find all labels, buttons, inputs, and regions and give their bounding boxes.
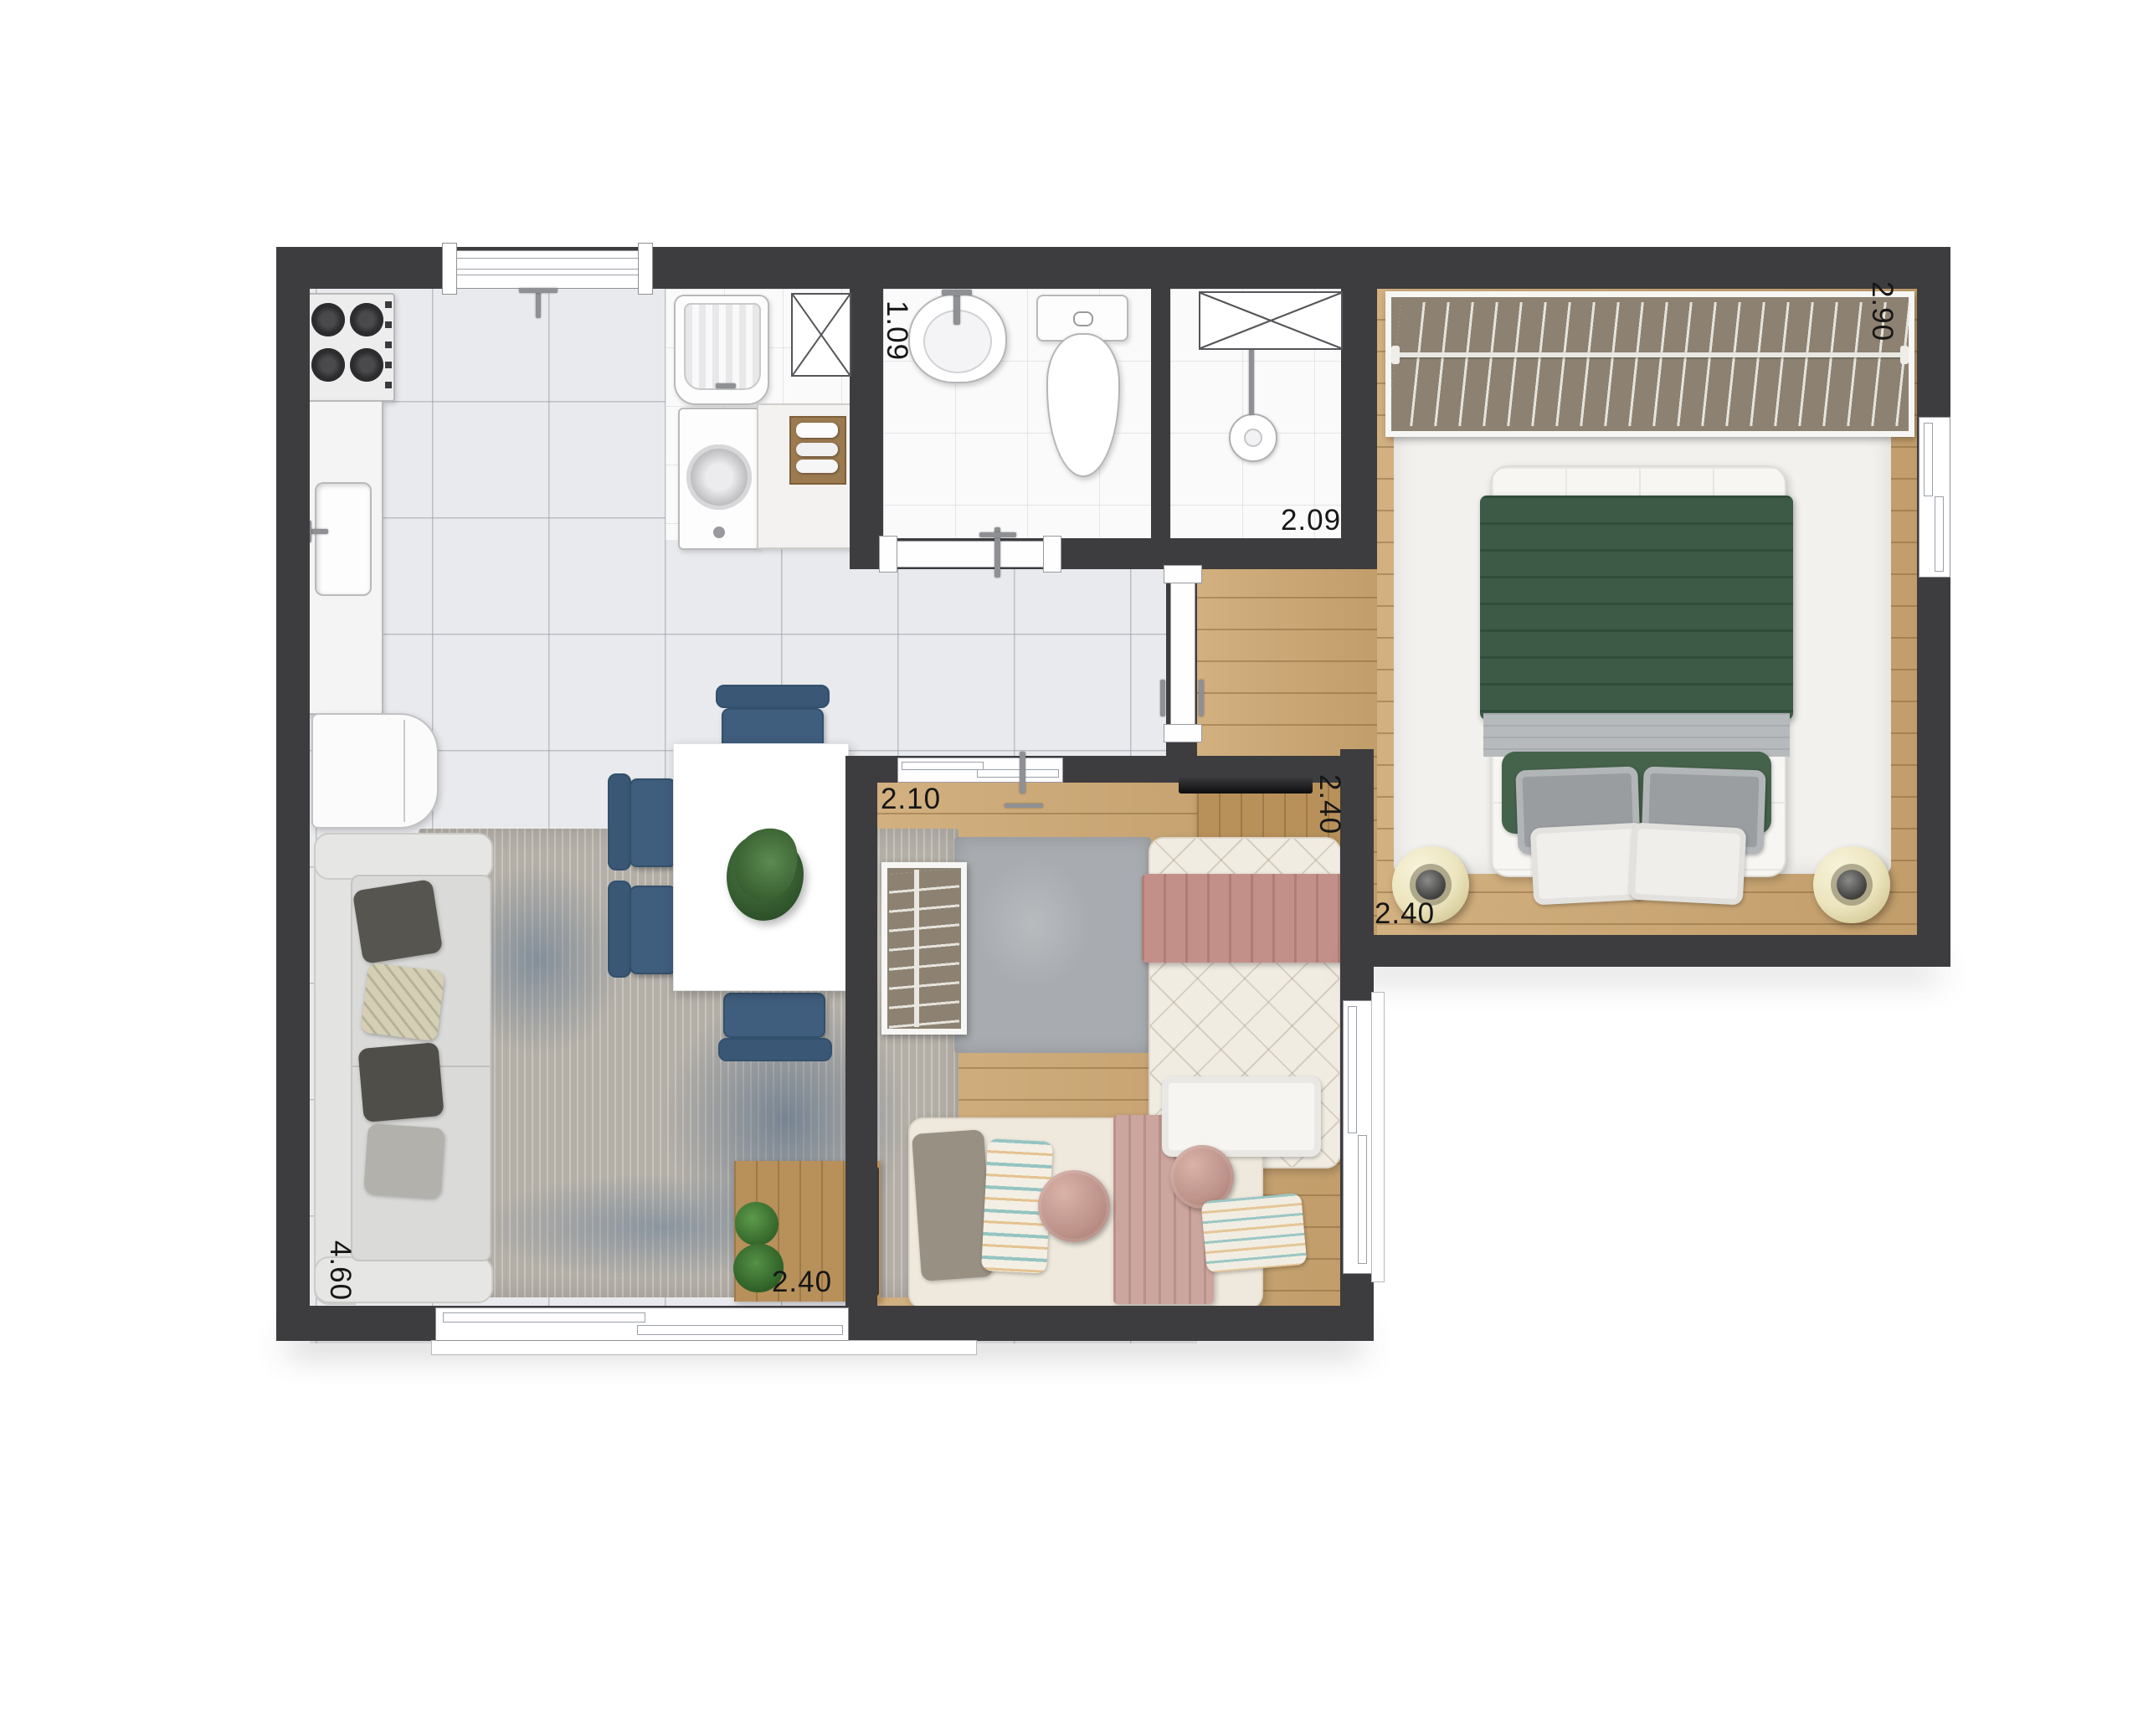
wall-bedroom2-left: [845, 756, 877, 1310]
bathroom-sink-faucet-bar: [942, 290, 972, 295]
bedroom2-rug: [954, 837, 1151, 1053]
towel-roll-3: [796, 460, 838, 473]
bedroom2-window-pane-1: [1348, 1006, 1357, 1133]
closet-rail-end-left: [1391, 346, 1400, 364]
dim-bedroom2-width: 2.10: [861, 783, 961, 816]
master-white-pillow-2: [1629, 823, 1747, 906]
dim-living-room-length: 4.60: [323, 1220, 357, 1321]
throw-pillow-dark-2: [357, 1042, 444, 1122]
shower-head-center: [1244, 429, 1262, 447]
air-shaft-shower: [1199, 291, 1343, 350]
burner-3: [311, 348, 345, 382]
bedroom2-closet-hangers: [889, 868, 959, 1028]
bedroom2-window-pane-2: [1358, 1135, 1367, 1264]
fridge-door-line: [403, 720, 405, 822]
tank-faucet: [716, 383, 736, 388]
bedroom2-door-handle: [1020, 752, 1025, 794]
dim-bedroom2-depth: 2.40: [1313, 754, 1346, 855]
living-window-pane-1: [443, 1312, 645, 1323]
master-closet: [1385, 291, 1914, 437]
kitchen-sink: [315, 482, 372, 596]
burner-4: [350, 348, 383, 382]
console-plant-1: [735, 1202, 779, 1246]
dining-chair-bottom: [723, 993, 825, 1038]
dim-living-room-width: 2.40: [752, 1266, 852, 1299]
air-shaft-laundry: [791, 293, 851, 377]
bathroom-sink-faucet: [953, 291, 960, 325]
bathroom-door-handle-bar: [979, 532, 1016, 537]
bedroom2-door-pane-1: [902, 762, 984, 770]
kitchen-window: [448, 250, 647, 289]
bedroom2-window-outer-sill: [1371, 992, 1385, 1282]
kitchen-window-pane: [454, 258, 643, 270]
dim-master-bedroom-width: 2.40: [1354, 897, 1455, 931]
burner-2: [350, 303, 383, 336]
living-window-pane-2: [637, 1325, 843, 1335]
hall-door: [1170, 582, 1195, 726]
wall-bath-shower-partition: [1151, 289, 1170, 540]
dim-master-closet-length: 2.90: [1865, 261, 1899, 362]
bedroom2-window: [1343, 1000, 1373, 1274]
kitchen-window-post-right: [638, 243, 653, 295]
kitchen-counter: [303, 400, 383, 715]
kitchen-window-post-left: [442, 243, 457, 295]
shower-head: [1229, 413, 1277, 462]
dining-chair-left-1: [630, 778, 676, 867]
kitchen-window-handle-bar: [519, 288, 558, 293]
dining-chair-bottom-back: [718, 1038, 832, 1061]
towel-roll-1: [796, 423, 838, 438]
closet-hangers: [1388, 302, 1912, 426]
hall-door-handle-inner: [1160, 680, 1165, 716]
bed2-knot-cushion-1: [1038, 1170, 1110, 1242]
toilet: [1036, 295, 1128, 480]
dim-shower-room-width: 2.09: [1261, 504, 1361, 537]
floor-plan: 1.09 2.09 2.90 2.10 2.40 2.40 2.40 4.60: [0, 0, 2143, 1736]
closet-rail: [1393, 352, 1907, 357]
throw-pillow-dark-1: [352, 879, 444, 964]
pouf-left-knob: [1416, 870, 1446, 900]
tv-bedroom2: [1179, 777, 1313, 794]
toilet-bowl: [1046, 333, 1120, 477]
towel-shelf: [789, 416, 846, 485]
throw-pillow-gray: [363, 1123, 445, 1199]
dining-chair-left-2: [630, 886, 676, 974]
dining-chair-top-back: [716, 685, 830, 708]
bathroom-door-frame-left: [879, 536, 897, 573]
bedroom2-closet: [881, 862, 967, 1035]
hall-door-handle-outer: [1199, 680, 1204, 716]
dining-chair-left-2-back: [608, 881, 631, 978]
stove: [301, 293, 395, 402]
bed-vertical-rose-blanket: [1142, 874, 1344, 963]
bedroom2-sliding-door: [897, 758, 1063, 783]
master-bed-gray-band: [1483, 713, 1790, 757]
washing-machine: [678, 408, 760, 550]
tank-basin: [684, 303, 761, 390]
washer-dial: [713, 526, 725, 538]
bedroom2-door-handle-bar: [1005, 804, 1043, 808]
pouf-right: [1813, 846, 1890, 923]
bed2-striped-pillow-2: [1200, 1193, 1307, 1273]
master-window-pane-2: [1935, 496, 1944, 572]
bed-vertical-white-pillow: [1162, 1076, 1321, 1157]
washer-drum: [686, 444, 752, 510]
laundry-tank: [674, 295, 769, 405]
bathroom-sink: [908, 293, 1007, 383]
flush-button: [1073, 311, 1093, 326]
dim-bathroom-width: 1.09: [880, 280, 913, 381]
kitchen-window-sill: [450, 275, 643, 284]
living-window: [435, 1307, 849, 1341]
towel-roll-2: [796, 443, 838, 456]
fridge: [311, 713, 439, 829]
throw-pillow-cream: [360, 963, 445, 1042]
closet-rail-end-right: [1900, 346, 1909, 364]
bathroom-door: [894, 541, 1046, 568]
bedroom2-door-pane-2: [977, 769, 1059, 778]
sofa-arm-top: [314, 833, 493, 880]
master-window-pane-1: [1924, 423, 1933, 496]
pouf-right-knob: [1837, 870, 1867, 900]
master-window: [1919, 417, 1950, 578]
wall-left: [276, 247, 310, 1341]
hall-door-frame-top: [1164, 565, 1202, 583]
shower-arm: [1249, 348, 1254, 415]
stove-knobs: [385, 301, 392, 393]
living-window-outer-sill: [431, 1340, 977, 1355]
wall-right-master: [1917, 247, 1950, 967]
wall-bottom-master: [1340, 935, 1950, 967]
table-plant: [727, 827, 804, 926]
burner-1: [311, 303, 345, 336]
bathroom-door-frame-right: [1043, 536, 1061, 573]
wall-laundry-bath-divider: [850, 289, 883, 540]
dining-chair-left-1-back: [608, 773, 631, 871]
hall-door-frame-bottom: [1164, 724, 1202, 742]
bedroom2-closet-rail: [914, 870, 919, 1027]
master-bed-blanket: [1480, 496, 1793, 720]
kitchen-window-handle: [536, 290, 541, 318]
